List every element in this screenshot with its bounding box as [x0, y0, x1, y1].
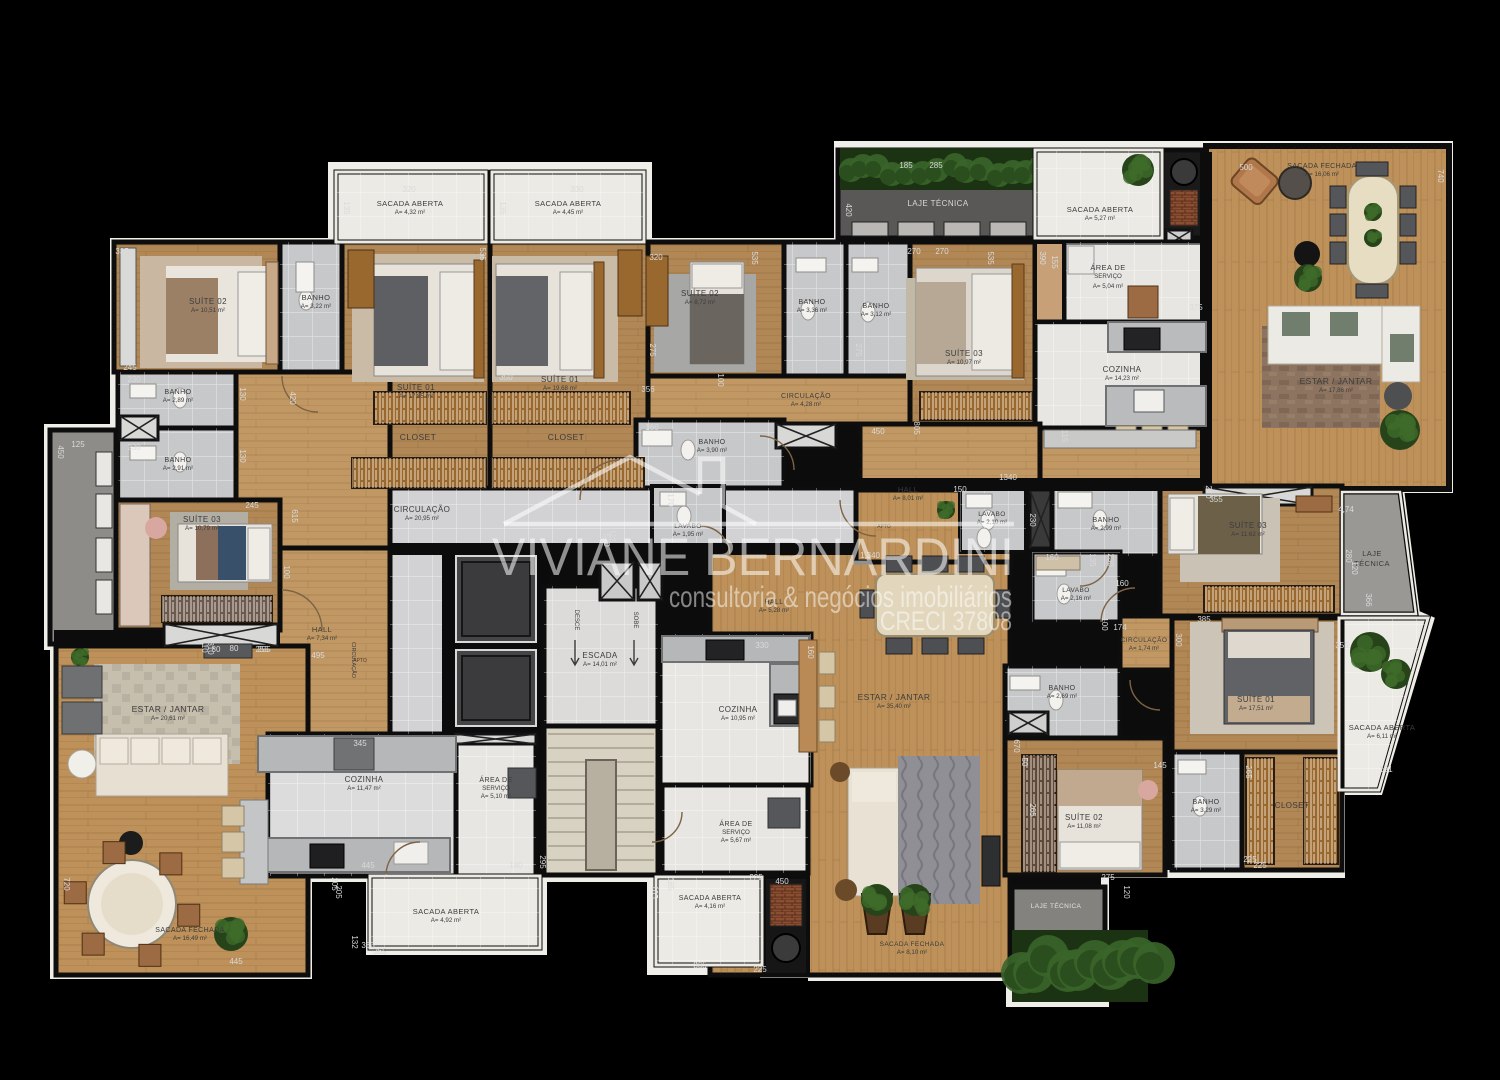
- svg-text:450: 450: [775, 877, 789, 886]
- svg-text:145: 145: [1153, 761, 1167, 770]
- svg-text:A= 4,45 m²: A= 4,45 m²: [553, 209, 583, 216]
- svg-text:BANHO: BANHO: [863, 303, 890, 310]
- svg-text:A= 5,10 m²: A= 5,10 m²: [481, 793, 511, 800]
- svg-text:ESTAR / JANTAR: ESTAR / JANTAR: [1300, 376, 1373, 386]
- svg-text:DESCE: DESCE: [573, 610, 579, 631]
- svg-text:160: 160: [1045, 553, 1059, 562]
- svg-text:275: 275: [854, 343, 863, 357]
- svg-text:295: 295: [538, 855, 547, 869]
- svg-text:SACADA FECHADA: SACADA FECHADA: [155, 927, 224, 934]
- svg-text:230: 230: [127, 443, 141, 452]
- svg-text:A= 8,72 m²: A= 8,72 m²: [685, 299, 715, 306]
- svg-text:330: 330: [570, 185, 584, 194]
- svg-text:A= 10,51 m²: A= 10,51 m²: [191, 307, 225, 314]
- svg-text:450: 450: [871, 427, 885, 436]
- svg-text:185: 185: [650, 885, 659, 899]
- svg-text:160: 160: [806, 645, 815, 659]
- svg-text:365: 365: [693, 961, 707, 970]
- svg-text:130: 130: [238, 387, 247, 401]
- svg-text:135: 135: [1088, 553, 1097, 567]
- svg-text:A= 8,01 m²: A= 8,01 m²: [893, 495, 923, 502]
- svg-text:805: 805: [912, 421, 921, 435]
- svg-text:265: 265: [1028, 803, 1037, 817]
- svg-text:535: 535: [986, 251, 995, 265]
- svg-text:285: 285: [929, 161, 943, 170]
- svg-text:SACADA ABERTA: SACADA ABERTA: [535, 199, 602, 208]
- svg-text:A= 2,99 m²: A= 2,99 m²: [1091, 525, 1121, 532]
- svg-text:CLOSET: CLOSET: [548, 432, 584, 442]
- svg-text:SUÍTE 02: SUÍTE 02: [1065, 813, 1103, 822]
- svg-text:355: 355: [1209, 495, 1223, 504]
- svg-text:A= 3,90 m²: A= 3,90 m²: [697, 447, 727, 454]
- svg-text:275: 275: [120, 313, 129, 327]
- svg-text:BANHO: BANHO: [1193, 799, 1220, 806]
- svg-text:A= 5,67 m²: A= 5,67 m²: [721, 837, 751, 844]
- svg-text:BANHO: BANHO: [1093, 517, 1120, 524]
- svg-text:125: 125: [71, 440, 85, 449]
- svg-text:320: 320: [649, 253, 663, 262]
- svg-text:APTO: APTO: [353, 658, 367, 664]
- svg-text:A= 20,61 m²: A= 20,61 m²: [151, 715, 185, 722]
- svg-text:1340: 1340: [999, 473, 1017, 482]
- svg-text:230: 230: [127, 375, 141, 384]
- svg-text:A= 16,06 m²: A= 16,06 m²: [1305, 171, 1339, 178]
- svg-text:720: 720: [62, 877, 71, 891]
- svg-text:135: 135: [342, 201, 351, 215]
- svg-text:COZINHA: COZINHA: [345, 775, 384, 784]
- svg-text:SACADA ABERTA: SACADA ABERTA: [679, 895, 742, 902]
- svg-text:445: 445: [229, 957, 243, 966]
- svg-text:130: 130: [238, 449, 247, 463]
- svg-text:SOBE: SOBE: [632, 612, 638, 629]
- svg-text:160: 160: [645, 423, 659, 432]
- svg-text:245: 245: [245, 501, 259, 510]
- svg-text:A= 2,91 m²: A= 2,91 m²: [163, 465, 193, 472]
- svg-text:80: 80: [230, 644, 239, 653]
- svg-text:CRECI 37808: CRECI 37808: [880, 606, 1012, 636]
- svg-text:366: 366: [1364, 593, 1373, 607]
- svg-text:SACADA ABERTA: SACADA ABERTA: [377, 199, 444, 208]
- svg-text:ÁREA DE: ÁREA DE: [1090, 263, 1125, 272]
- svg-text:270: 270: [935, 247, 949, 256]
- svg-text:191: 191: [1379, 765, 1393, 774]
- svg-text:SACADA FECHADA: SACADA FECHADA: [1287, 163, 1356, 170]
- svg-text:A= 11,08 m²: A= 11,08 m²: [1067, 823, 1100, 830]
- svg-text:160: 160: [1115, 579, 1129, 588]
- svg-text:SUÍTE 02: SUÍTE 02: [189, 297, 227, 306]
- svg-text:132: 132: [350, 935, 359, 949]
- svg-text:CIRCULAÇÃO: CIRCULAÇÃO: [781, 391, 831, 400]
- svg-text:A= 4,28 m²: A= 4,28 m²: [791, 401, 821, 408]
- svg-text:BANHO: BANHO: [799, 299, 826, 306]
- svg-text:365: 365: [373, 947, 387, 956]
- svg-text:230: 230: [1028, 513, 1037, 527]
- svg-text:A= 17,86 m²: A= 17,86 m²: [1319, 387, 1353, 394]
- svg-text:345: 345: [353, 739, 367, 748]
- svg-text:ESTAR / JANTAR: ESTAR / JANTAR: [132, 704, 205, 714]
- svg-text:BANHO: BANHO: [699, 439, 726, 446]
- svg-text:A= 2,89 m²: A= 2,89 m²: [163, 397, 193, 404]
- svg-text:A= 6,11 m²: A= 6,11 m²: [1367, 733, 1397, 740]
- svg-text:A= 19,68 m²: A= 19,68 m²: [543, 385, 577, 392]
- svg-text:355: 355: [1335, 641, 1349, 650]
- svg-text:A= 10,97 m²: A= 10,97 m²: [947, 359, 981, 366]
- svg-text:SERVIÇO: SERVIÇO: [1094, 273, 1122, 280]
- svg-text:SACADA ABERTA: SACADA ABERTA: [413, 907, 480, 916]
- svg-text:225: 225: [753, 965, 767, 974]
- svg-text:A= 3,29 m²: A= 3,29 m²: [1191, 807, 1221, 814]
- svg-text:BANHO: BANHO: [1049, 685, 1076, 692]
- svg-text:135: 135: [498, 201, 507, 215]
- svg-text:120: 120: [1122, 885, 1131, 899]
- svg-text:100: 100: [282, 565, 291, 579]
- svg-text:420: 420: [844, 203, 853, 217]
- svg-text:SACADA ABERTA: SACADA ABERTA: [1349, 723, 1416, 732]
- svg-text:CLOSET: CLOSET: [400, 432, 436, 442]
- svg-text:245: 245: [123, 363, 137, 372]
- svg-text:255: 255: [257, 645, 271, 654]
- svg-text:BANHO: BANHO: [302, 293, 331, 302]
- svg-text:500: 500: [1239, 163, 1253, 172]
- svg-text:205: 205: [334, 885, 343, 899]
- svg-text:225: 225: [1253, 861, 1267, 870]
- svg-text:265: 265: [1244, 765, 1253, 779]
- svg-text:A= 11,47 m²: A= 11,47 m²: [347, 785, 380, 792]
- svg-text:A= 4,32 m²: A= 4,32 m²: [395, 209, 425, 216]
- svg-text:445: 445: [361, 861, 375, 870]
- svg-text:CLOSET: CLOSET: [1275, 801, 1309, 810]
- svg-text:A= 4,92 m²: A= 4,92 m²: [431, 917, 461, 924]
- svg-text:SUÍTE 01: SUÍTE 01: [397, 383, 435, 392]
- svg-text:495: 495: [311, 651, 325, 660]
- svg-text:COZINHA: COZINHA: [719, 705, 758, 714]
- svg-text:230: 230: [1106, 553, 1115, 567]
- svg-text:CIRCULAÇÃO: CIRCULAÇÃO: [1121, 635, 1168, 644]
- svg-text:SUÍTE 03: SUÍTE 03: [945, 349, 983, 358]
- svg-text:SERVIÇO: SERVIÇO: [482, 785, 510, 792]
- svg-text:535: 535: [478, 247, 487, 261]
- svg-text:BANHO: BANHO: [165, 457, 192, 464]
- svg-text:LAVABO: LAVABO: [1062, 587, 1089, 594]
- svg-text:740: 740: [1436, 169, 1445, 183]
- svg-text:225: 225: [749, 873, 763, 882]
- svg-text:180: 180: [509, 861, 523, 870]
- svg-text:A= 2,69 m²: A= 2,69 m²: [1047, 693, 1077, 700]
- svg-text:A= 14,23 m²: A= 14,23 m²: [1105, 375, 1139, 382]
- svg-text:300: 300: [1174, 633, 1183, 647]
- svg-text:385: 385: [1197, 615, 1211, 624]
- svg-text:50: 50: [1020, 758, 1029, 767]
- svg-text:A= 5,04 m²: A= 5,04 m²: [1093, 283, 1123, 290]
- svg-text:SUÍTE 01: SUÍTE 01: [1237, 695, 1275, 704]
- svg-text:SUÍTE 02: SUÍTE 02: [681, 289, 719, 298]
- svg-text:A= 17,85 m²: A= 17,85 m²: [399, 393, 433, 400]
- svg-text:155: 155: [1050, 255, 1059, 269]
- svg-text:ESCADA: ESCADA: [582, 651, 618, 660]
- svg-text:SUÍTE 01: SUÍTE 01: [541, 375, 579, 384]
- svg-text:A= 7,34 m²: A= 7,34 m²: [307, 635, 337, 642]
- svg-text:VIVIANE BERNARDINI: VIVIANE BERNARDINI: [492, 528, 1014, 587]
- svg-text:A= 10,95 m²: A= 10,95 m²: [721, 715, 755, 722]
- svg-text:335: 335: [115, 247, 129, 256]
- svg-text:SUÍTE 03: SUÍTE 03: [183, 515, 221, 524]
- svg-text:SERVIÇO: SERVIÇO: [722, 829, 750, 836]
- svg-text:LAVABO: LAVABO: [978, 511, 1005, 518]
- svg-text:A= 3,22 m²: A= 3,22 m²: [301, 303, 331, 310]
- svg-text:LAJE: LAJE: [1362, 549, 1382, 558]
- svg-text:A= 11,62 m²: A= 11,62 m²: [1231, 531, 1264, 538]
- svg-text:330: 330: [755, 641, 769, 650]
- svg-text:A= 1,74 m²: A= 1,74 m²: [1129, 645, 1159, 652]
- svg-text:450: 450: [56, 445, 65, 459]
- svg-text:275: 275: [648, 343, 657, 357]
- svg-text:100: 100: [1100, 617, 1109, 631]
- svg-text:A= 17,51 m²: A= 17,51 m²: [1239, 705, 1273, 712]
- svg-text:185: 185: [899, 161, 913, 170]
- svg-text:A= 3,12 m²: A= 3,12 m²: [861, 311, 891, 318]
- svg-text:170: 170: [666, 493, 675, 507]
- svg-text:4,74: 4,74: [1338, 505, 1354, 514]
- svg-text:ÁREA DE: ÁREA DE: [719, 819, 752, 828]
- svg-text:CIRCULAÇÃO: CIRCULAÇÃO: [394, 505, 450, 514]
- svg-text:320: 320: [402, 185, 416, 194]
- svg-text:SACADA ABERTA: SACADA ABERTA: [1067, 205, 1134, 214]
- svg-text:BANHO: BANHO: [165, 389, 192, 396]
- svg-text:375: 375: [1189, 303, 1203, 312]
- svg-text:390: 390: [1038, 251, 1047, 265]
- svg-text:185: 185: [666, 877, 675, 891]
- svg-text:A= 14,01 m²: A= 14,01 m²: [583, 661, 617, 668]
- svg-text:174: 174: [1113, 623, 1127, 632]
- svg-text:A= 20,95 m²: A= 20,95 m²: [405, 515, 439, 522]
- svg-text:ÁREA DE: ÁREA DE: [479, 775, 512, 784]
- svg-text:HALL: HALL: [898, 485, 918, 494]
- svg-text:A= 2,16 m²: A= 2,16 m²: [1061, 595, 1091, 602]
- svg-text:HALL: HALL: [312, 625, 332, 634]
- svg-text:ESTAR / JANTAR: ESTAR / JANTAR: [858, 692, 931, 702]
- svg-text:A= 3,36 m²: A= 3,36 m²: [797, 307, 827, 314]
- svg-text:100: 100: [716, 373, 725, 387]
- svg-text:310: 310: [206, 641, 215, 655]
- svg-text:150: 150: [953, 485, 967, 494]
- svg-text:SUÍTE 03: SUÍTE 03: [1229, 521, 1267, 530]
- svg-text:615: 615: [290, 509, 299, 523]
- svg-text:120: 120: [1350, 561, 1359, 575]
- svg-text:270: 270: [907, 247, 921, 256]
- svg-text:115: 115: [1060, 430, 1069, 443]
- svg-text:350: 350: [499, 373, 513, 382]
- svg-text:A= 8,10 m²: A= 8,10 m²: [897, 949, 927, 956]
- svg-text:LAJE TÉCNICA: LAJE TÉCNICA: [1031, 901, 1082, 910]
- svg-text:COZINHA: COZINHA: [1103, 365, 1142, 374]
- svg-text:A= 10,79 m²: A= 10,79 m²: [185, 525, 219, 532]
- svg-text:535: 535: [750, 251, 759, 265]
- svg-text:A= 16,49 m²: A= 16,49 m²: [173, 935, 207, 942]
- svg-text:A= 35,40 m²: A= 35,40 m²: [877, 703, 911, 710]
- svg-text:356: 356: [641, 385, 655, 394]
- svg-text:A= 5,27 m²: A= 5,27 m²: [1085, 215, 1115, 222]
- svg-text:A= 4,16 m²: A= 4,16 m²: [695, 903, 725, 910]
- svg-text:420: 420: [288, 391, 297, 405]
- svg-text:LAJE TÉCNICA: LAJE TÉCNICA: [907, 199, 968, 208]
- svg-text:275: 275: [1101, 873, 1115, 882]
- svg-text:SACADA FECHADA: SACADA FECHADA: [880, 941, 945, 948]
- svg-text:670: 670: [1012, 739, 1021, 753]
